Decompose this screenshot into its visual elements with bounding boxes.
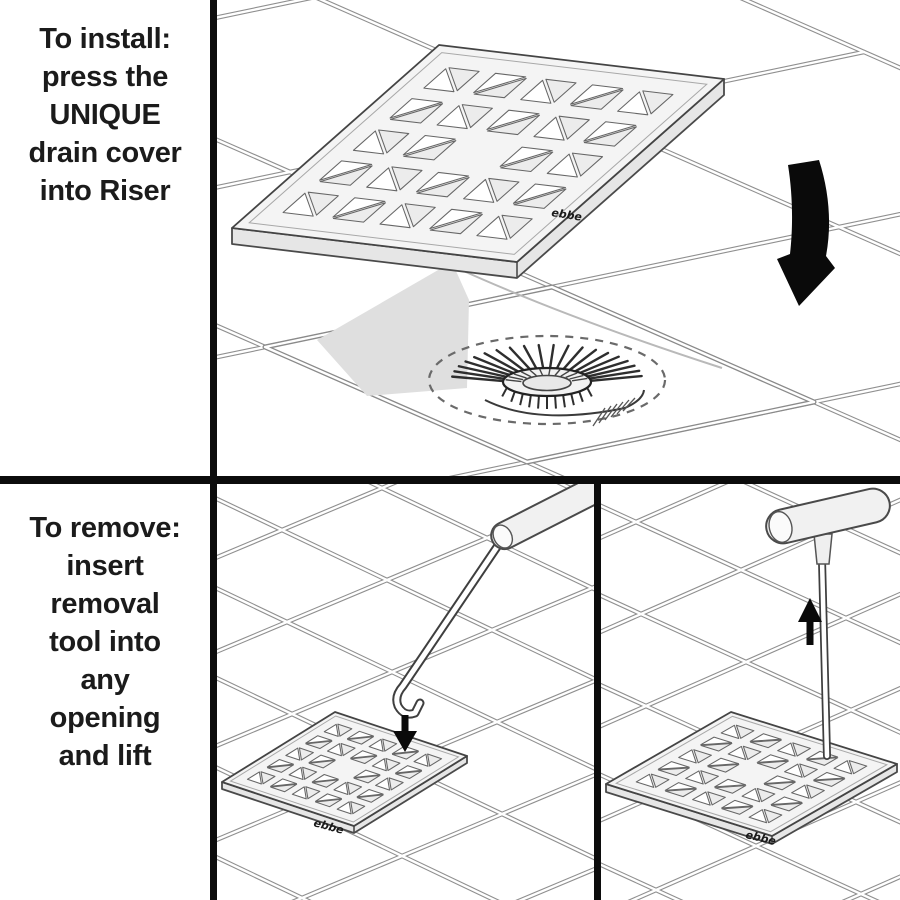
instruction-line: UNIQUE xyxy=(0,96,210,134)
install-instructions-panel: To install: press the UNIQUE drain cover… xyxy=(0,0,210,476)
instruction-line: into Riser xyxy=(0,172,210,210)
instruction-line: removal xyxy=(0,585,210,623)
instruction-line: insert xyxy=(0,547,210,585)
remove-step1-illustration-panel: ebbe xyxy=(217,484,594,900)
instruction-line: opening xyxy=(0,699,210,737)
instruction-line: To remove: xyxy=(0,509,210,547)
instruction-line: To install: xyxy=(0,20,210,58)
instruction-sheet: To install: press the UNIQUE drain cover… xyxy=(0,0,900,900)
tile-grid xyxy=(217,484,594,900)
drain-cover xyxy=(606,712,897,844)
drain-opening xyxy=(265,262,814,462)
removal-tool-lifting xyxy=(763,485,893,756)
instruction-line: drain cover xyxy=(0,134,210,172)
instruction-line: press the xyxy=(0,58,210,96)
remove-instructions-panel: To remove: insert removal tool into any … xyxy=(0,484,210,900)
remove-step2-illustration-panel: ebbe xyxy=(601,484,900,900)
curved-down-arrow-icon xyxy=(777,160,835,306)
remove-step2-illustration: ebbe xyxy=(601,484,900,900)
remove-step1-illustration: ebbe xyxy=(217,484,594,900)
instruction-line: any xyxy=(0,661,210,699)
install-illustration: ebbe xyxy=(217,0,900,476)
instruction-line: tool into xyxy=(0,623,210,661)
horizontal-divider xyxy=(0,476,900,484)
vertical-divider-bottom xyxy=(594,484,601,900)
vertical-divider-left xyxy=(210,0,217,900)
install-illustration-panel: ebbe xyxy=(217,0,900,476)
instruction-line: and lift xyxy=(0,737,210,775)
drain-cover xyxy=(232,45,724,278)
